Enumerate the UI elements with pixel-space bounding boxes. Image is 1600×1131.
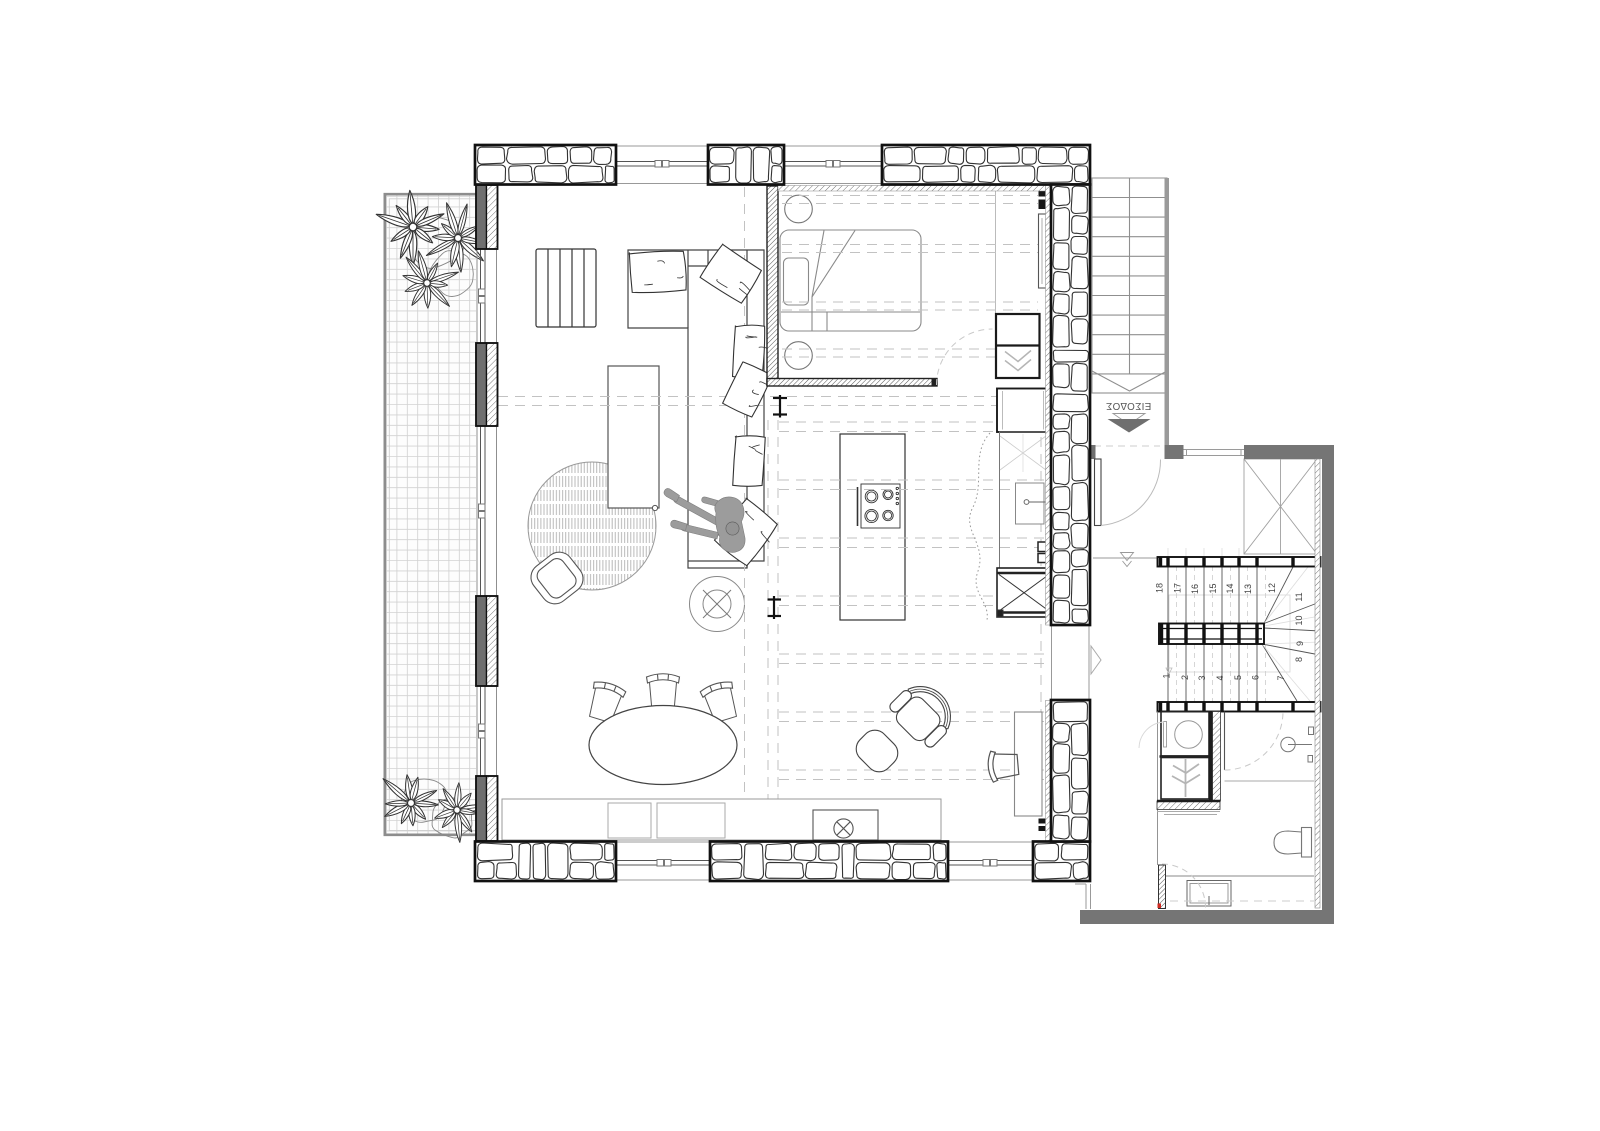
svg-text:17: 17 — [1173, 583, 1183, 593]
svg-text:18: 18 — [1155, 583, 1165, 593]
svg-text:2: 2 — [1180, 675, 1190, 680]
svg-text:8: 8 — [1294, 657, 1304, 662]
svg-text:11: 11 — [1294, 592, 1304, 601]
svg-text:14: 14 — [1225, 583, 1235, 593]
svg-text:12: 12 — [1267, 583, 1277, 593]
svg-text:ΕΙΣΟΔΟΣ: ΕΙΣΟΔΟΣ — [1106, 400, 1152, 411]
svg-text:1: 1 — [1162, 673, 1172, 678]
svg-text:13: 13 — [1243, 584, 1253, 594]
svg-text:7: 7 — [1276, 675, 1286, 680]
svg-text:6: 6 — [1251, 675, 1261, 680]
svg-text:5: 5 — [1233, 675, 1243, 680]
svg-text:9: 9 — [1295, 641, 1305, 646]
svg-text:15: 15 — [1208, 583, 1218, 593]
svg-text:10: 10 — [1294, 615, 1304, 625]
svg-text:3: 3 — [1197, 675, 1207, 680]
svg-text:16: 16 — [1190, 584, 1200, 594]
svg-text:4: 4 — [1215, 675, 1225, 680]
